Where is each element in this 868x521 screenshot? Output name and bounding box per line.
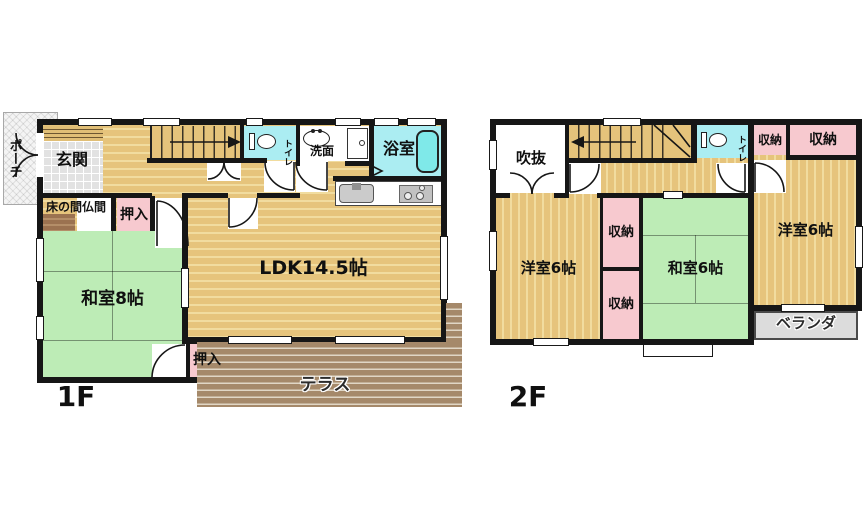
fukinuke-label: 吹抜	[510, 149, 552, 167]
toilet-2f-label: トイレ	[734, 126, 747, 170]
stairs-down-arrowhead	[571, 136, 584, 148]
closet-b-label: 収納	[796, 131, 850, 148]
washitsu6-label: 和室6帖	[661, 259, 730, 278]
senmen-label: 洗面	[305, 144, 339, 158]
tokonoma-label: 床の間仏間	[36, 199, 116, 215]
toilet-1f-label: トイレ	[280, 128, 293, 176]
floor1-title: 1F	[44, 380, 108, 414]
genkan-label: 玄関	[51, 151, 93, 169]
floor-plan-canvas: ポーチ 玄関 トイレ 洗面 浴室 床の間仏間 押入 和室8帖 LDK14.5帖 …	[0, 0, 868, 521]
closet-d-label: 収納	[604, 296, 638, 312]
closet-c-label: 収納	[604, 224, 638, 240]
yoshitsu-left-label: 洋室6帖	[514, 259, 583, 278]
porch-label: ポーチ	[6, 122, 22, 194]
oshiire-lower-label: 押入	[189, 351, 225, 369]
ldk-label: LDK14.5帖	[266, 257, 361, 279]
floor2-title: 2F	[496, 380, 560, 414]
stairs-up-arrowhead	[228, 136, 241, 148]
door-swing-overlay	[0, 0, 868, 521]
yoshitsu-right-label: 洋室6帖	[771, 221, 840, 240]
closet-a-label: 収納	[754, 132, 786, 148]
washitsu8-label: 和室8帖	[74, 289, 151, 309]
bath-label: 浴室	[381, 140, 417, 158]
oshiire-upper-label: 押入	[118, 206, 150, 223]
terrace-label: テラス	[291, 374, 359, 396]
veranda-label: ベランダ	[772, 314, 840, 333]
